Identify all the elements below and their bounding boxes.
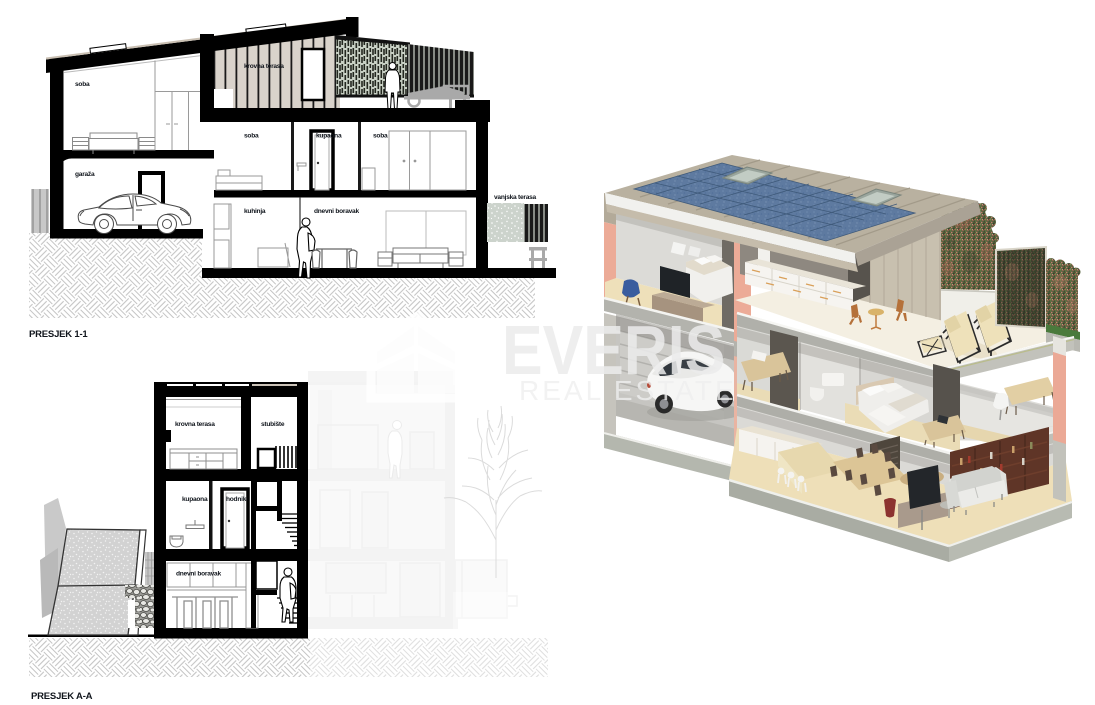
svg-text:dnevni boravak: dnevni boravak	[314, 208, 359, 215]
svg-text:kuhinja: kuhinja	[244, 208, 266, 215]
svg-text:dnevni boravak: dnevni boravak	[176, 571, 221, 578]
svg-text:hodnik: hodnik	[226, 496, 247, 503]
svg-text:kupaona: kupaona	[316, 133, 342, 140]
svg-text:PRESJEK 1-1: PRESJEK 1-1	[29, 329, 88, 340]
svg-text:soba: soba	[244, 133, 259, 140]
svg-text:krovna terasa: krovna terasa	[175, 421, 215, 428]
svg-text:soba: soba	[373, 133, 388, 140]
svg-text:vanjska terasa: vanjska terasa	[494, 194, 537, 201]
svg-text:kupaona: kupaona	[182, 496, 208, 503]
svg-text:krovna terasa: krovna terasa	[244, 63, 284, 70]
svg-text:PRESJEK A-A: PRESJEK A-A	[31, 691, 93, 702]
svg-text:soba: soba	[75, 81, 90, 88]
svg-text:stubište: stubište	[261, 421, 285, 428]
svg-text:REAL ESTATE: REAL ESTATE	[519, 375, 737, 406]
svg-text:garaža: garaža	[75, 171, 95, 178]
